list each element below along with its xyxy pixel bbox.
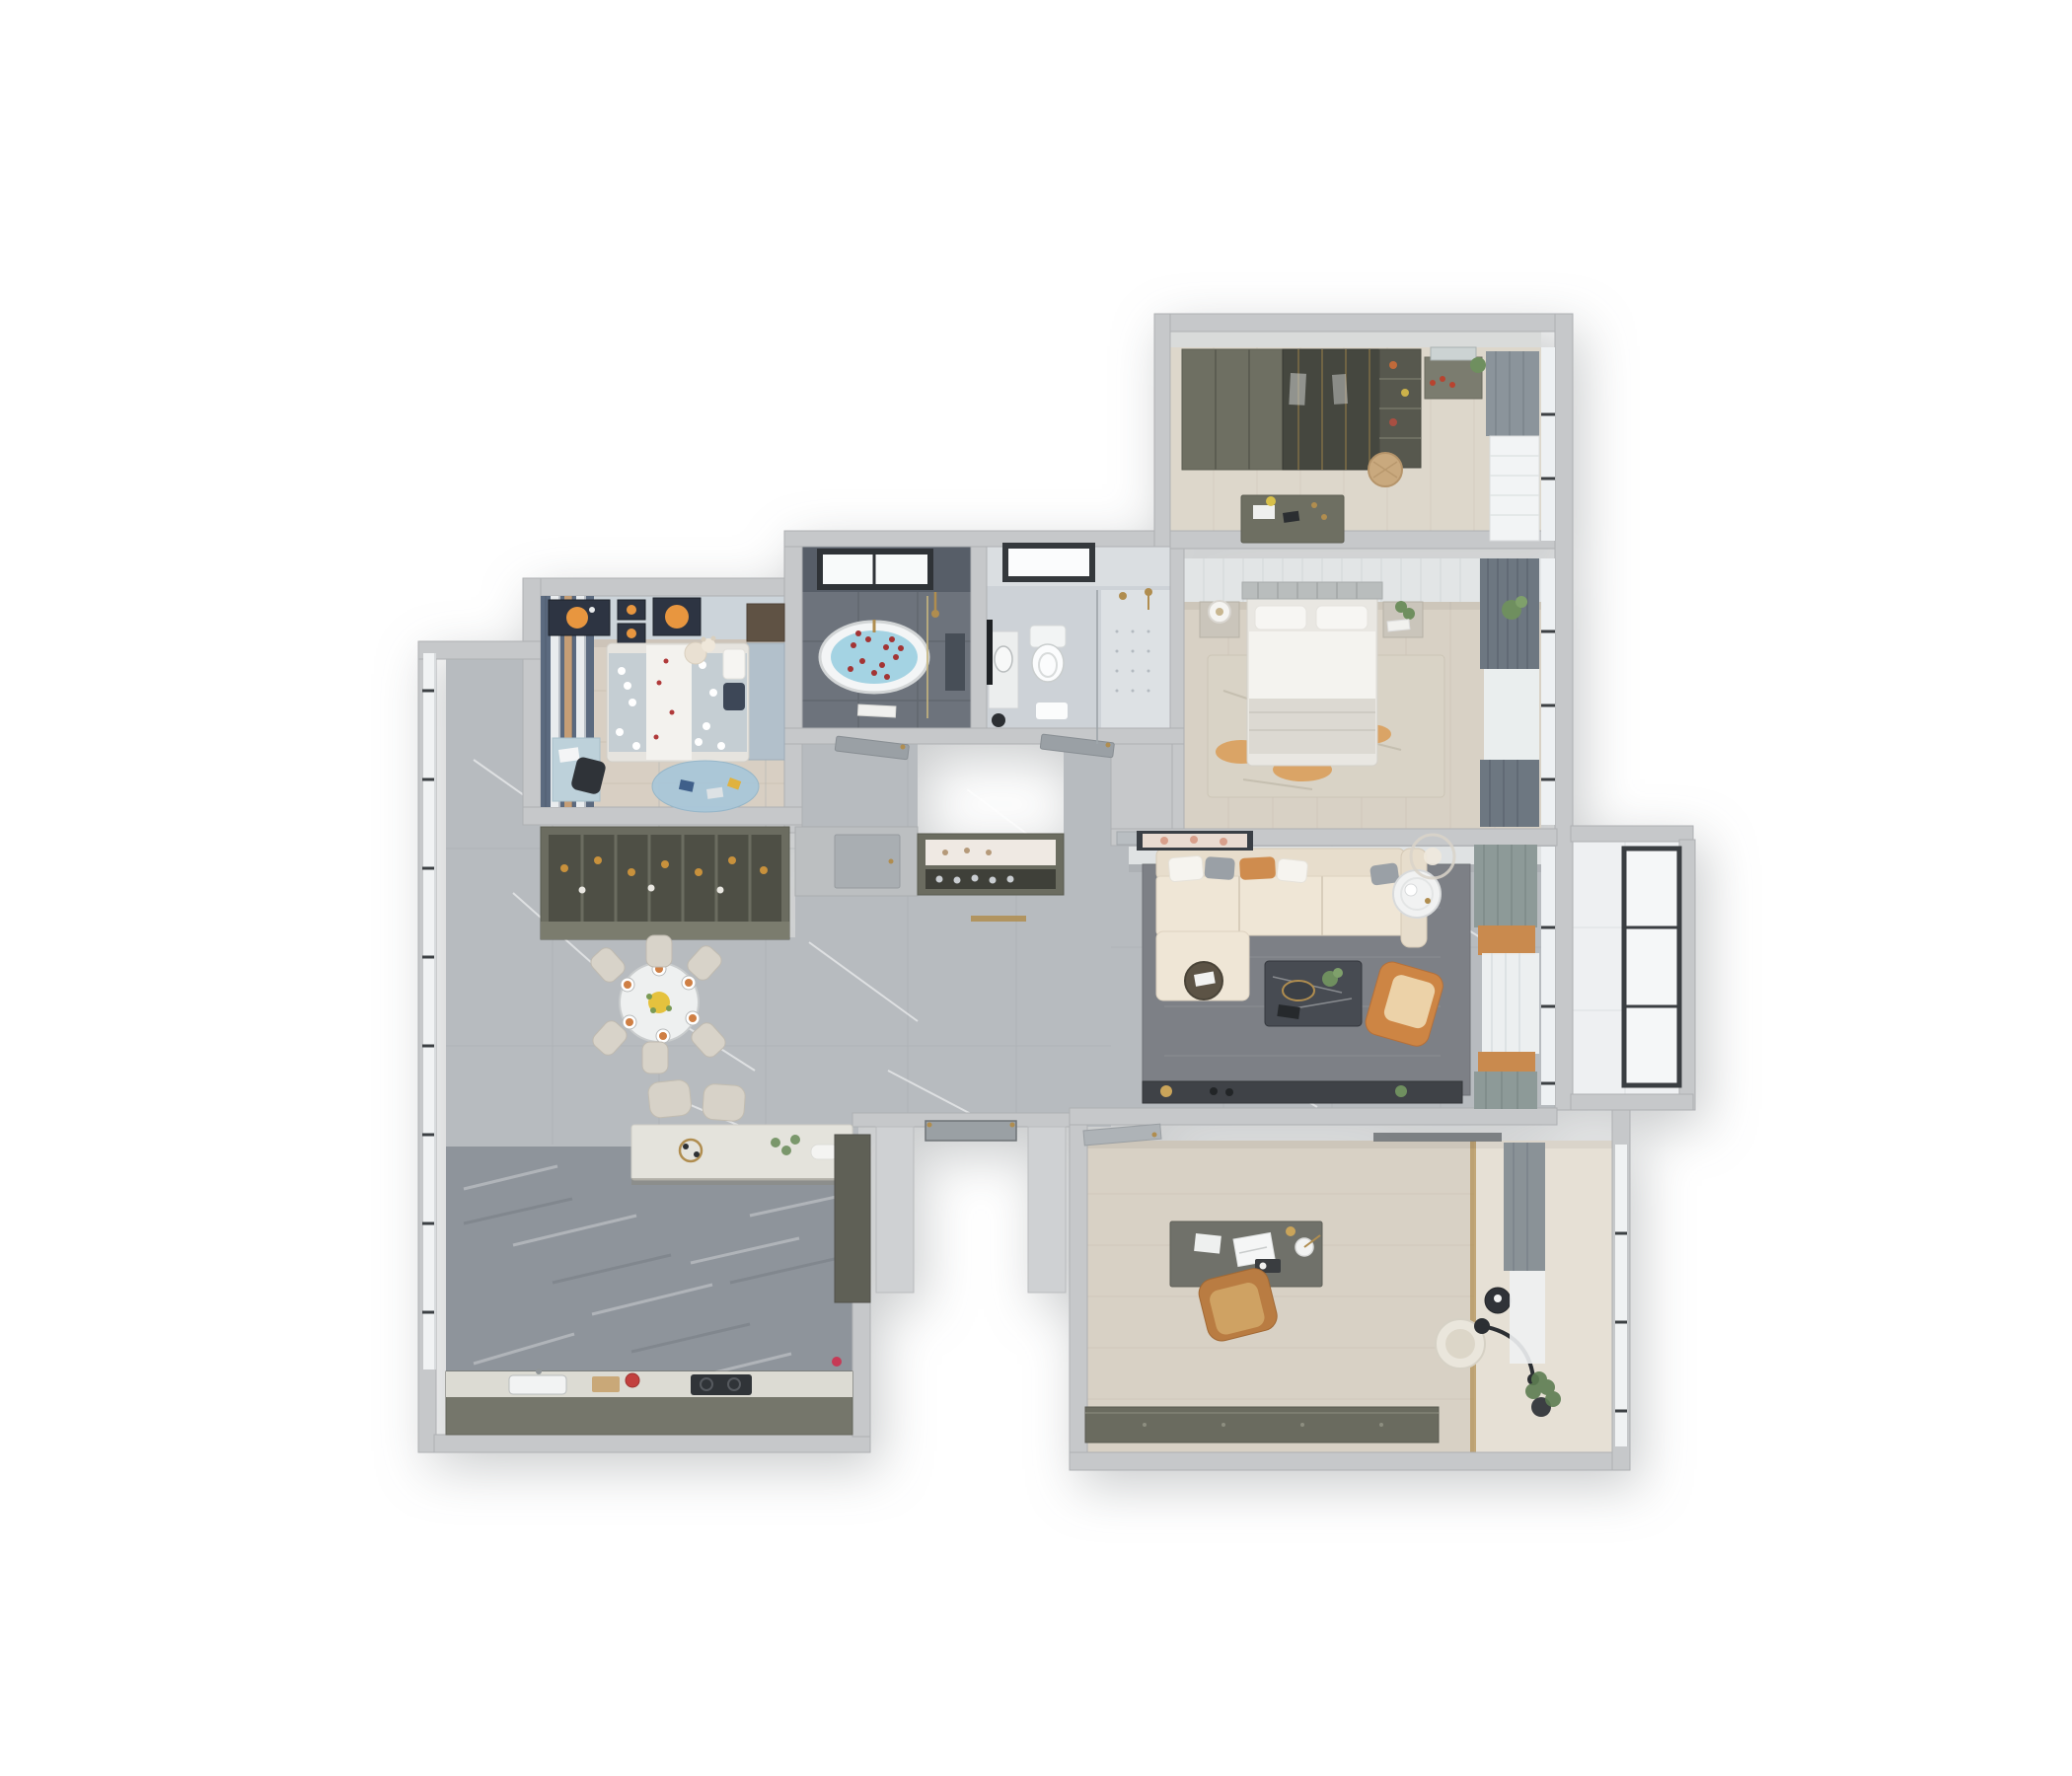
kids-bed-polka-dots-dot [629, 699, 636, 706]
dining-cabinet-bottles-dot [594, 856, 602, 864]
balcony-window-panel [1624, 849, 1679, 1085]
cloak-wardrobe-west [1182, 349, 1283, 470]
cloak-curtain [1486, 351, 1539, 436]
cloak-perfumes-dot [1430, 380, 1436, 386]
window-dining-glass [423, 653, 434, 1369]
window-study-glass [1615, 1145, 1627, 1446]
study-cabinet-handles-dot [1221, 1423, 1225, 1427]
bath-guest-shower-drain-dot [1132, 690, 1135, 693]
study-plant-leaves-dot [1531, 1371, 1547, 1387]
bath-guest-shower-fixtures-dot [1119, 592, 1127, 600]
bath-guest-shower-drain-dot [1147, 690, 1150, 693]
kitchen-cutting-board [592, 1376, 620, 1392]
bath-guest-shower-floor [1101, 590, 1170, 744]
kids-bed-polka-dots-dot [695, 738, 703, 746]
cloak-wardrobe-glass [1283, 349, 1379, 470]
living-console-lamp [1160, 1085, 1172, 1097]
master-lamp-center [1216, 608, 1223, 616]
master-plant-2 [1516, 596, 1527, 608]
cloak-mirror [1431, 347, 1476, 360]
master-pillow-2 [1316, 606, 1368, 629]
study-curtain [1504, 1143, 1545, 1271]
bar-stool-1 [647, 1079, 693, 1119]
cloak-desk-gold-items-dot [1321, 514, 1327, 520]
kids-pillow-dark [723, 683, 745, 710]
kids-wardrobe [747, 643, 784, 760]
dining-cabinet-glasses-dot [579, 887, 586, 894]
bath-master-petals-dot [883, 644, 889, 650]
kids-desk-laptop [558, 747, 580, 763]
living-console-plant [1395, 1085, 1407, 1097]
floorplan-svg [0, 0, 2072, 1776]
window-master-glass [1541, 558, 1555, 825]
living-media-console [1143, 1081, 1462, 1103]
master-headboard [1242, 582, 1382, 599]
wall-kids-south [523, 807, 802, 825]
bar-stool-2 [702, 1083, 745, 1122]
living-curtain-green-bottom [1474, 1072, 1537, 1109]
dining-cabinet-bottles-dot [628, 868, 635, 876]
cloak-desk-tray [1253, 505, 1275, 519]
bath-master-petals-dot [879, 662, 885, 668]
dining-cabinet-bottles-dot [760, 866, 768, 874]
window-cloak-glass [1541, 347, 1555, 541]
dining-food-dot [685, 979, 693, 987]
dining-flower-greens-dot [666, 1005, 672, 1011]
hall-closet-door-handle [889, 859, 894, 864]
kids-bed-polka-dots-dot [709, 689, 717, 697]
bath-master-petals-dot [893, 654, 899, 660]
dining-chair-south [642, 1042, 668, 1073]
bath-master-petals-dot [859, 658, 865, 664]
kids-art-moon-medium [665, 605, 689, 629]
wall-cloak-north [1170, 314, 1571, 332]
kids-bed-polka-dots-dot [618, 667, 626, 675]
kids-bed-red-dots-dot [670, 710, 675, 715]
master-nightstand-plant-dot [1403, 608, 1415, 620]
study-ac-strip [1373, 1133, 1502, 1142]
kids-bed-red-dots-dot [654, 735, 659, 740]
wall-northwest-step [418, 641, 541, 659]
study-sheer [1510, 1271, 1545, 1364]
kids-art-astronaut [589, 607, 595, 613]
dining-chair-north [646, 935, 672, 967]
island-plant-sprig-dot [771, 1138, 780, 1147]
entry-door-hinges-dot [1010, 1123, 1015, 1128]
master-blanket [1249, 699, 1375, 754]
entry-console-shoes-dot [936, 876, 943, 883]
dining-cabinet-glasses-dot [648, 885, 655, 892]
living-artwork-shapes-dot [1160, 837, 1168, 845]
entry-console-shoes-dot [972, 875, 979, 882]
kids-bed-polka-dots-dot [632, 742, 640, 750]
master-nightstand-book [1387, 620, 1410, 631]
bath-guest-shower-drain-dot [1132, 650, 1135, 653]
entry-console-shoes-dot [1007, 876, 1014, 883]
cloak-plant-1 [1470, 357, 1486, 373]
study-gold-cup [1286, 1226, 1295, 1236]
dining-flower-greens-dot [646, 994, 652, 999]
dining-food-dot [624, 981, 631, 989]
master-sheer [1484, 669, 1539, 760]
wall-balcony-south [1571, 1094, 1693, 1110]
sofa-seat [1156, 876, 1405, 935]
bath-guest-mat [1036, 703, 1068, 719]
bath-guest-shower-drain-dot [1132, 670, 1135, 673]
kitchen-faucet [536, 1369, 542, 1374]
kids-bed-polka-dots-dot [703, 722, 710, 730]
bath-guest-bin [992, 713, 1005, 727]
cloak-bag-3 [1389, 418, 1397, 426]
wall-balcony-north [1571, 826, 1693, 842]
bath-guest-shower-drain-dot [1147, 670, 1150, 673]
bath-guest-shower-drain-dot [1116, 630, 1119, 633]
bath-guest-shower-drain-dot [1147, 650, 1150, 653]
wall-corridor-east-block [1111, 744, 1172, 829]
bath-guest-shower-drain-dot [1116, 670, 1119, 673]
living-gold-cup [1425, 898, 1431, 904]
bath-master-petals-dot [898, 645, 904, 651]
entry-door-hinges-dot [927, 1123, 932, 1128]
wall-kids-east [784, 531, 802, 833]
kitchen-island-shadow [631, 1178, 852, 1185]
kids-rug [652, 761, 759, 812]
dining-food-dot [689, 1014, 697, 1022]
bath-master-petals-dot [871, 670, 877, 676]
kitchen-tall-cabinet [835, 1135, 870, 1302]
living-ceiling-light-inner [1424, 848, 1442, 865]
coffee-table-tray [1283, 981, 1314, 1000]
entry-threshold-gold [971, 916, 1026, 922]
plan-root [418, 314, 1695, 1470]
entry-console-decor-dot [942, 850, 948, 855]
kids-bed-polka-dots-dot [624, 682, 631, 690]
cloak-wall-face [1170, 332, 1541, 347]
bath-master-petals-dot [851, 642, 856, 648]
sofa-pillow-1 [1168, 855, 1204, 882]
kids-teddy-ears-dot [702, 637, 706, 642]
study-tray-cup [1260, 1263, 1267, 1270]
island-espresso-cups-dot [683, 1144, 689, 1149]
bath-master-niche [945, 633, 965, 691]
cloak-desk-flower [1266, 496, 1276, 506]
island-plant-sprig-dot [781, 1146, 791, 1155]
entry-console-decor-dot [964, 848, 970, 853]
bath-master-petals-dot [865, 636, 871, 642]
cloak-hanging-clothes-2 [1332, 374, 1348, 405]
cloak-perfumes-dot [1449, 382, 1455, 388]
living-artwork-shapes-dot [1190, 836, 1198, 844]
kids-art-moon-small-2 [627, 629, 636, 638]
cloak-perfumes-dot [1440, 376, 1445, 382]
window-bath-guest-glass [1008, 549, 1089, 576]
living-console-vases-dot [1225, 1088, 1233, 1096]
cloak-hanging-clothes-1 [1289, 373, 1306, 406]
dining-cabinet-glasses-dot [717, 887, 724, 894]
wall-living-study-divider [1070, 1108, 1557, 1125]
wall-bath-divider [971, 547, 987, 744]
wall-study-west [1070, 1125, 1087, 1470]
cloak-bag-2 [1401, 389, 1409, 397]
sofa-pillow-4 [1277, 858, 1308, 883]
wall-porch-left [876, 1127, 914, 1293]
entry-console-shoes-dot [990, 877, 997, 884]
bath-guest-shower-drain-dot [1116, 650, 1119, 653]
dining-cabinet-bottles-dot [661, 860, 669, 868]
wall-study-south [1070, 1452, 1628, 1470]
wall-porch-right [1028, 1127, 1066, 1293]
kids-bed-polka-dots-dot [616, 728, 624, 736]
dining-cabinet-bottles-dot [728, 856, 736, 864]
kids-art-moon-large [566, 607, 588, 629]
wall-kitchen-south [434, 1435, 870, 1452]
wall-cloak-west [1154, 314, 1170, 547]
bath-master-petals-dot [855, 630, 861, 636]
study-paper [1194, 1233, 1221, 1254]
kids-bed-red-dots-dot [657, 681, 662, 686]
island-espresso-cups-dot [694, 1151, 700, 1157]
cloak-roller-blind [1490, 436, 1539, 541]
dining-cabinet-bottles-dot [560, 864, 568, 872]
coffee-table-plant-2 [1333, 968, 1343, 978]
living-console-vases-dot [1210, 1087, 1218, 1095]
entry-console-shoes-dot [954, 877, 961, 884]
dining-cabinet-bottles-dot [695, 868, 703, 876]
bath-guest-basin [995, 646, 1012, 672]
bath-master-towel [857, 704, 896, 717]
living-curtain-orange-2 [1478, 1052, 1535, 1073]
bath-master-petals-dot [848, 666, 853, 672]
wall-east-main [1555, 314, 1573, 1110]
bath-guest-tv-strip [987, 620, 993, 685]
study-door-handle [1152, 1133, 1157, 1138]
study-balcony-threshold [1470, 1141, 1476, 1454]
kitchen-counter-top [446, 1371, 852, 1397]
kitchen-sink [509, 1375, 566, 1394]
master-duvet [1249, 631, 1375, 706]
study-lounge-cushion [1445, 1329, 1475, 1359]
kids-teddy-ears-dot [711, 636, 716, 641]
master-pillow-1 [1255, 606, 1306, 629]
marble-floor-hall [795, 893, 1111, 1127]
study-cabinet-handles-dot [1379, 1423, 1383, 1427]
cloak-bag-1 [1389, 361, 1397, 369]
window-living-glass [1541, 847, 1555, 1105]
kids-bed-polka-dots-dot [717, 742, 725, 750]
study-side-table-cup [1494, 1295, 1502, 1302]
entry-door-transom [925, 1121, 1016, 1141]
bath-guest-door-handle [1106, 743, 1111, 748]
cloak-desk-gold-items-dot [1311, 502, 1317, 508]
island-plant-sprig-dot [790, 1135, 800, 1145]
bath-master-shower-head [931, 610, 939, 618]
living-artwork-shapes-dot [1220, 838, 1227, 846]
bath-guest-shower-drain-dot [1147, 630, 1150, 633]
kitchen-kettle-red [626, 1373, 639, 1387]
kids-bed-red-dots-dot [664, 659, 669, 664]
bath-guest-shower-drain-dot [1116, 690, 1119, 693]
bath-master-door-handle [901, 745, 906, 750]
wall-kids-west [523, 578, 541, 825]
bath-master-petals-dot [889, 636, 895, 642]
kids-pillow-white [723, 649, 745, 679]
wall-kids-north [523, 578, 800, 596]
study-plant-leaves-dot [1545, 1391, 1561, 1407]
floorplan-page [0, 0, 2072, 1776]
kids-wardrobe-niche [747, 604, 784, 641]
kitchen-extinguisher [832, 1357, 842, 1367]
living-curtain-sheer [1482, 953, 1539, 1054]
sofa-pillow-2 [1204, 856, 1234, 880]
living-curtain-orange-1 [1478, 925, 1535, 955]
wall-bath-north [784, 531, 1184, 547]
kids-art-moon-small-1 [627, 605, 636, 615]
marble-floor-corridor-east [1064, 744, 1111, 894]
study-cabinet-handles-dot [1300, 1423, 1304, 1427]
bath-master-petals-dot [884, 674, 890, 680]
dining-food-dot [659, 1032, 667, 1040]
sofa-pillow-3 [1239, 856, 1276, 880]
study-cabinet-handles-dot [1143, 1423, 1147, 1427]
bath-guest-shower-drain-dot [1132, 630, 1135, 633]
entry-console-decor-dot [986, 850, 992, 855]
dining-food-dot [626, 1018, 633, 1026]
dining-flower-greens-dot [650, 1007, 656, 1013]
living-teapot [1405, 884, 1417, 896]
kids-bed-duvet [646, 645, 692, 760]
